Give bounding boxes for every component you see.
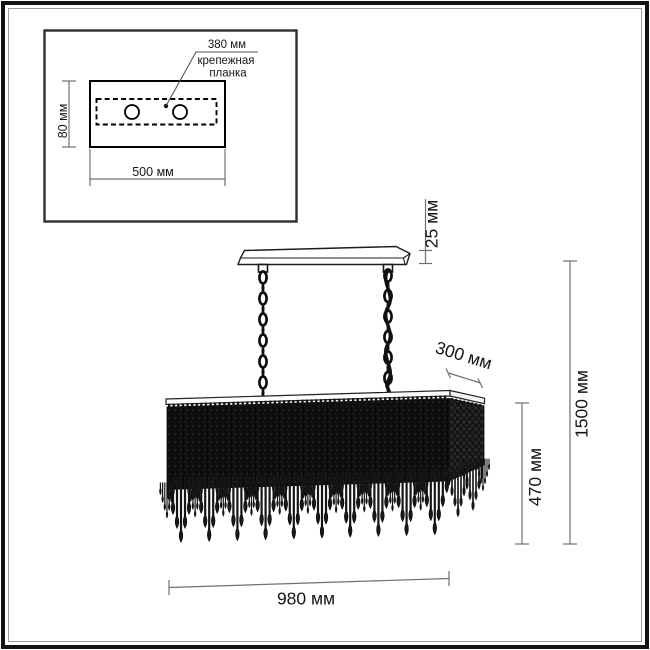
total-height-dimension: 1500 мм (563, 261, 592, 544)
crystal-shade (159, 391, 490, 543)
shade-width-label: 980 мм (277, 589, 335, 609)
bracket-width-label: 380 мм (208, 39, 246, 51)
plate-height-label: 80 мм (56, 104, 70, 139)
shade-height-label: 470 мм (525, 448, 545, 506)
bracket-name-line2: планка (209, 68, 247, 80)
canopy-thickness-label: 25 мм (422, 200, 442, 248)
canopy-thickness-dimension: 25 мм (419, 199, 442, 264)
plate-width-label: 500 мм (132, 165, 174, 179)
diagram-canvas: 380 мм крепежная планка 80 мм 500 мм (0, 0, 650, 650)
total-height-label: 1500 мм (572, 370, 592, 438)
ceiling-plate-outline (90, 81, 225, 147)
shade-height-dimension: 470 мм (515, 403, 545, 544)
chain-left (259, 272, 266, 399)
mounting-hole-right (173, 105, 187, 119)
shade-width-dimension: 980 мм (169, 571, 449, 609)
ceiling-canopy (238, 247, 410, 265)
chain-right (384, 270, 391, 395)
chandelier-drawing: 25 мм 300 мм 1500 мм (159, 199, 591, 609)
mounting-plate-inset: 380 мм крепежная планка 80 мм 500 мм (45, 31, 297, 222)
shade-depth-label: 300 мм (433, 337, 494, 373)
chandelier-dimension-diagram: 380 мм крепежная планка 80 мм 500 мм (0, 0, 650, 650)
shade-depth-dimension: 300 мм (433, 337, 494, 388)
bracket-name-line1: крепежная (198, 55, 255, 67)
mounting-hole-left (125, 105, 139, 119)
